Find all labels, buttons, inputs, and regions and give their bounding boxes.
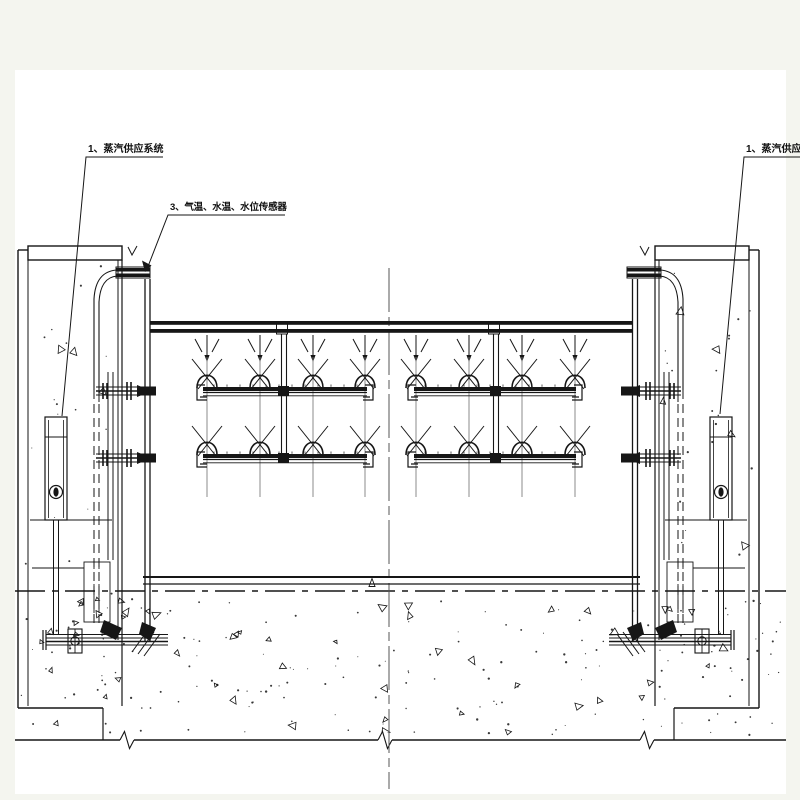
gate-heating-system-drawing: 1、蒸汽供应系统 3、气温、水温、水位传感器 1、蒸汽供应系统 xyxy=(0,0,800,800)
callout-steam-supply-right: 1、蒸汽供应系统 xyxy=(746,142,800,155)
callout-sensors: 3、气温、水温、水位传感器 xyxy=(170,201,287,213)
callout-steam-supply-left: 1、蒸汽供应系统 xyxy=(88,142,164,155)
cad-drawing-page: 1、蒸汽供应系统 3、气温、水温、水位传感器 1、蒸汽供应系统 xyxy=(0,0,800,800)
drawing-canvas xyxy=(15,70,786,794)
